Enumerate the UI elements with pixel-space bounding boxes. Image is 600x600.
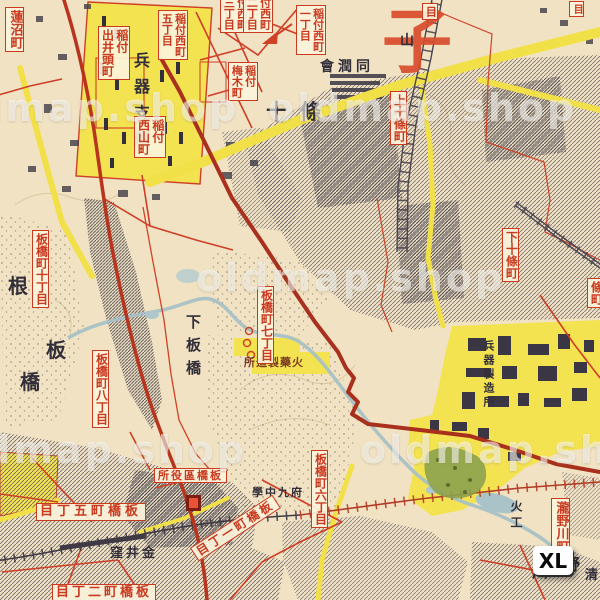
label-col: 出井頭町 [100,29,113,77]
elevation-value: 29.0 [204,519,222,528]
kanaikubo-label: 窪井金 [110,542,158,561]
watermark-text: oldmap.shop [0,86,239,130]
town-label-me-edge-2: 目 [569,1,584,17]
town-label-itabashi-2: 目丁二町橋板 [52,584,156,600]
district-big-character: 子 [382,0,452,87]
school-label: 學中九府 [252,484,304,500]
label-col: 二丁目 [245,0,257,30]
town-label-itabashi-10: 板橋町十丁目 [32,230,49,308]
town-label-inatsuke-nishi-1: 稲付西町 一丁目 [296,5,326,55]
label-col: 稲付 [243,65,255,87]
watermark-text: oldmap.shop [196,256,505,300]
town-label-me-edge-1: 目 [422,3,438,20]
size-badge-xl: XL [533,546,573,575]
station-symbol [186,495,201,511]
label-col: 稲付西町 [311,8,323,52]
town-label-itabashi-8: 板橋町八丁目 [92,350,109,428]
town-label-hasunuma: 蓮沼町 [5,7,24,52]
town-label-inatsuke-deiigashira: 稲付 出井頭町 [98,26,130,80]
label-col: 三丁目 [222,0,234,30]
label-col: 稲付 [114,29,127,53]
ita-area-char: 板 [46,334,66,363]
kiyo-area-char: 清 [585,564,598,583]
label-col: 稲付西町 [173,13,185,57]
yama-label: 山 [400,30,414,50]
town-label-inatsuke-nishi-2: 付西町 二丁目 [243,0,273,33]
town-label-itabashi-5: 目丁五町橋板 [36,503,146,521]
label-col: 付西町 [258,0,270,30]
watermark-text: oldmap.shop [268,86,577,130]
label-col: 五丁目 [160,13,172,46]
town-label-jo-edge: 條町 [587,278,600,308]
watermark-text: oldmap.shop [0,428,247,472]
label-col: 一丁目 [298,8,310,41]
dojunkai-label: 會潤同 [320,56,374,76]
watermark-text: oldmap.shop [360,428,600,472]
arms-factory-label: 兵器製造所 [480,340,496,410]
shimo-itabashi-label: 下板橋 [183,314,204,383]
town-label-inatsuke-nishi-5: 稲付西町 五丁目 [158,10,188,60]
hashi-area-char: 橋 [20,366,40,395]
vintage-map-canvas: 子 蓮沼町 板橋町十丁目 板橋町八丁目 板橋町七丁目 板橋町六丁目 上十條町 下… [0,0,600,600]
ne-area-char: 根 [8,270,28,299]
kako-label: 火工 [508,500,525,532]
town-label-itabashi-6: 板橋町六丁目 [311,450,328,528]
